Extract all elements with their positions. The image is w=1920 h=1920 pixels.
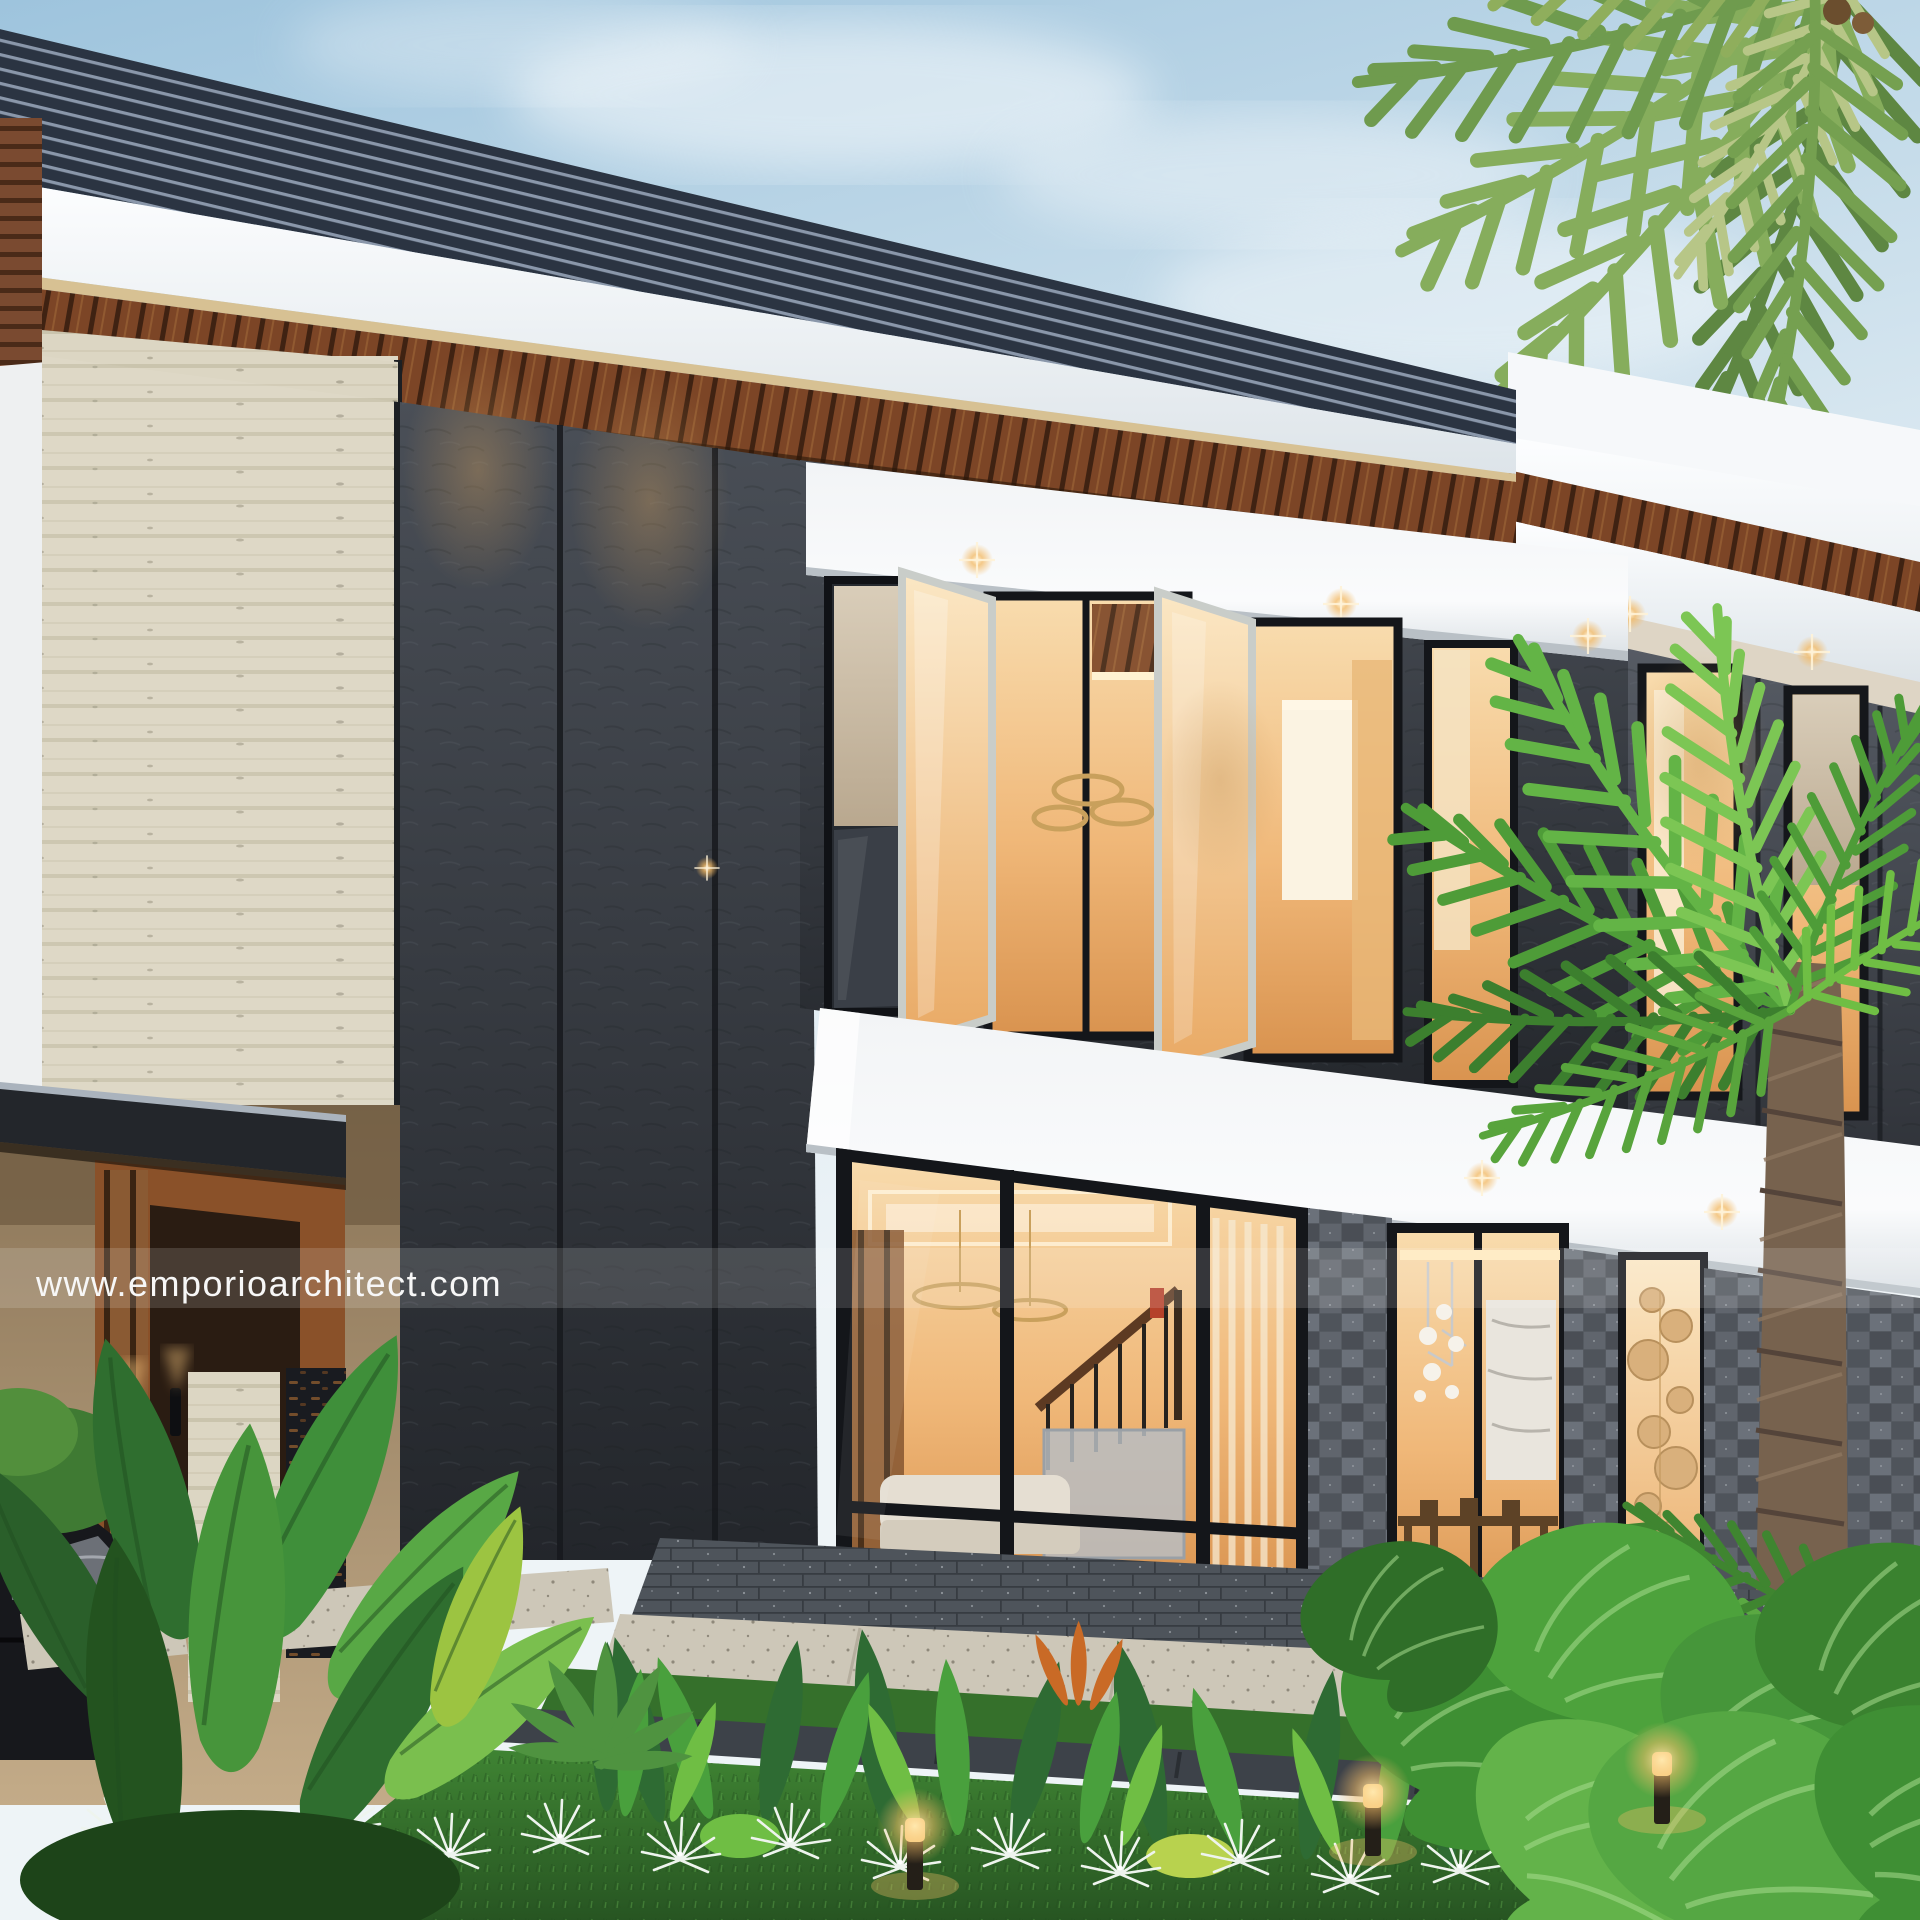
watermark: www.emporioarchitect.com	[0, 1248, 1920, 1308]
side-slat-wall	[0, 118, 42, 373]
charcoal-wall-upper-left	[400, 350, 818, 1560]
casement-window-1	[902, 572, 1188, 1046]
architectural-rendering: www.emporioarchitect.com	[0, 0, 1920, 1920]
window-roller-shade	[828, 580, 908, 1012]
corner-trim	[0, 362, 46, 1118]
wall-light-pool	[403, 350, 553, 590]
bollard-light	[1618, 1722, 1706, 1834]
bollard-light	[871, 1788, 959, 1900]
open-sash	[902, 572, 992, 1046]
wall-light-pool	[570, 370, 730, 630]
watermark-text: www.emporioarchitect.com	[35, 1263, 502, 1304]
bollard-light	[1329, 1754, 1417, 1866]
